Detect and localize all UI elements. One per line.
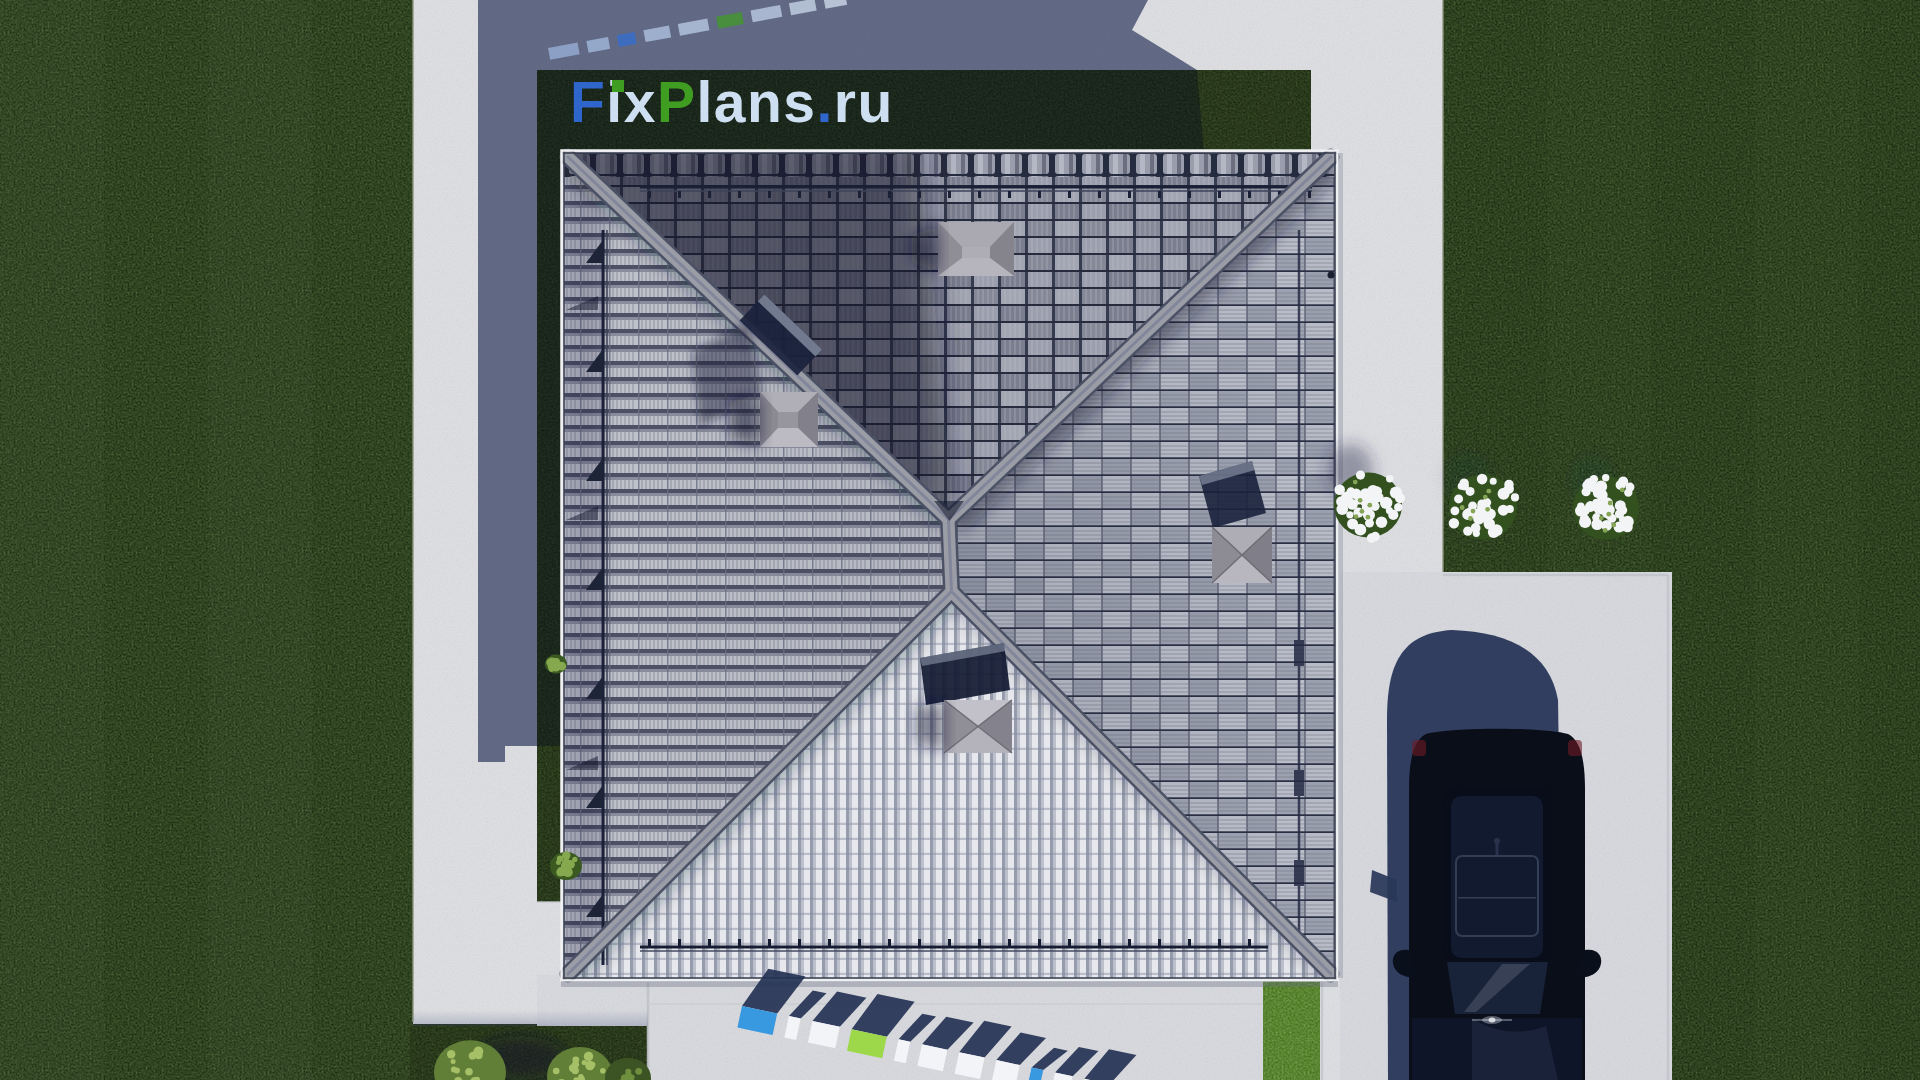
svg-text:FixPlans.ru: FixPlans.ru (570, 70, 894, 134)
